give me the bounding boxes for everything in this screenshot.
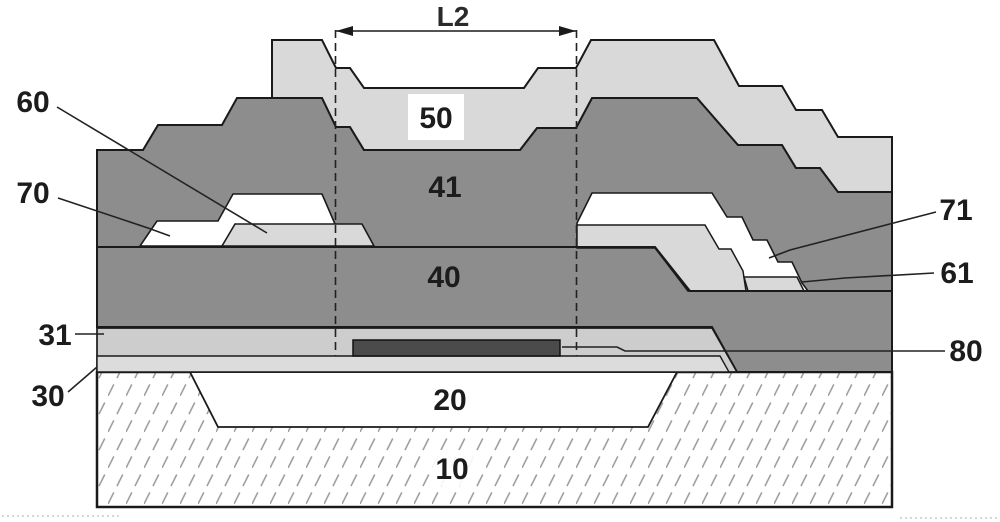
layer-30-shape	[97, 356, 729, 372]
ref-label-60: 60	[16, 86, 49, 119]
dimension-arrow-right-icon	[559, 26, 576, 36]
ref-label-61: 61	[940, 257, 973, 290]
ref-label-40: 40	[427, 261, 460, 294]
ref-label-10: 10	[435, 453, 468, 486]
leader-30	[68, 367, 97, 392]
patent-figure: L2 60 70 31 30 71 61 80 50 41 40 20 10	[0, 0, 1000, 522]
ref-label-20: 20	[433, 384, 466, 417]
gray-trapezoid-60-shape	[222, 224, 374, 246]
ref-label-41: 41	[428, 171, 461, 204]
dimension-arrow-left-icon	[336, 26, 353, 36]
ref-label-31: 31	[38, 319, 71, 352]
ref-label-80: 80	[949, 335, 982, 368]
ref-label-50: 50	[419, 102, 452, 135]
ref-label-71: 71	[939, 194, 972, 227]
ref-label-30: 30	[31, 380, 64, 413]
dimension-label-l2: L2	[437, 1, 470, 32]
gray-step-61-shape	[744, 277, 804, 291]
light-shield-bar-80	[353, 340, 560, 356]
ref-label-70: 70	[16, 177, 49, 210]
cross-section-drawing: L2 60 70 31 30 71 61 80 50 41 40 20 10	[0, 0, 1000, 522]
